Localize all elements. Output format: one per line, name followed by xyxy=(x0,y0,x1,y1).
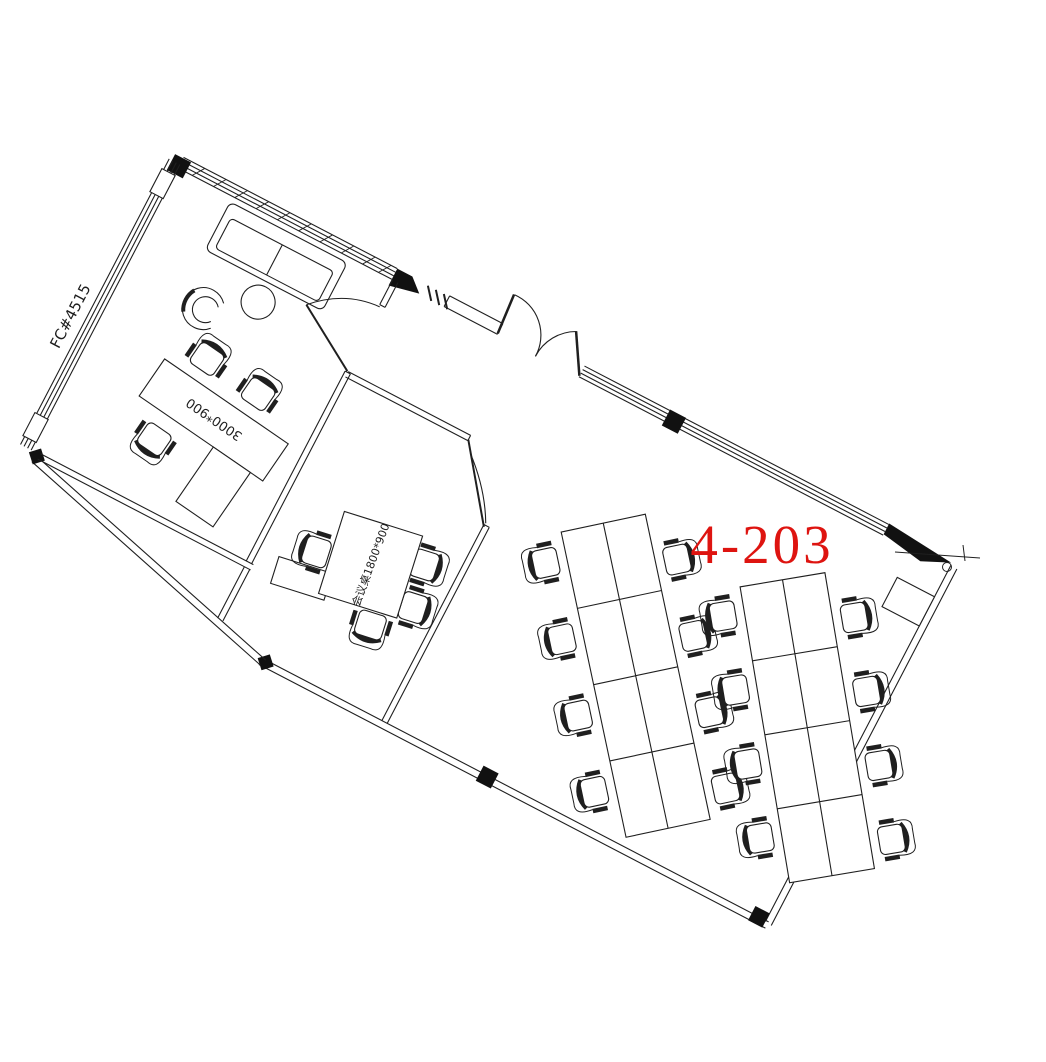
duct-shaft xyxy=(882,577,934,626)
office-chair xyxy=(735,818,776,860)
office-chair xyxy=(864,743,905,785)
sofa-cushion-divider xyxy=(267,245,283,275)
office-chair xyxy=(876,817,917,859)
desk-bank-2 xyxy=(697,565,919,890)
office-chair xyxy=(552,695,594,739)
office-chair xyxy=(568,771,610,815)
plan-rotated-group: FC#4515 xyxy=(0,113,1046,987)
wall-lines xyxy=(345,372,470,441)
wall-lines xyxy=(218,567,250,621)
private-office-furniture: 3000*900 xyxy=(93,202,380,544)
office-chair xyxy=(520,542,562,586)
office-chair xyxy=(839,595,880,637)
door-leaf xyxy=(436,440,516,527)
door-swing-arc xyxy=(445,453,511,523)
wall-hatch xyxy=(422,286,452,310)
door-swing-arc xyxy=(535,320,576,368)
entry-double-door xyxy=(493,294,599,378)
top-window-wall xyxy=(167,126,968,575)
room-number-label: 4-203 xyxy=(690,514,833,575)
mullion-block xyxy=(23,413,48,443)
meeting-room-furniture: 会议桌1800*900 xyxy=(252,475,475,688)
window-wall-lines xyxy=(178,157,397,279)
floor-plan-page: FC#4515 xyxy=(0,0,1046,1062)
extension-tick xyxy=(963,545,965,561)
wall-lines xyxy=(0,456,300,667)
wall-poche-wedge xyxy=(389,269,425,300)
door-leaf xyxy=(288,305,366,371)
lounge-tub-chair xyxy=(175,280,227,334)
wall-segment xyxy=(444,296,503,334)
column-block xyxy=(476,766,499,789)
door-leaf xyxy=(495,294,517,333)
fc-window-wall: FC#4515 xyxy=(0,148,195,469)
office-chair xyxy=(126,418,176,468)
office-chair xyxy=(536,619,578,663)
column-block xyxy=(748,906,770,928)
window-wall-lines xyxy=(579,366,889,535)
door-swing-arc xyxy=(494,295,557,357)
door-swing-arc xyxy=(306,276,379,335)
slanted-exterior-wall xyxy=(0,456,300,667)
office-chair xyxy=(185,330,235,380)
tub-chair-inner xyxy=(188,292,221,326)
floor-plan-canvas: FC#4515 xyxy=(0,0,1046,1062)
mullion-block xyxy=(150,169,175,199)
office-chair xyxy=(236,365,286,415)
sofa xyxy=(205,202,347,311)
